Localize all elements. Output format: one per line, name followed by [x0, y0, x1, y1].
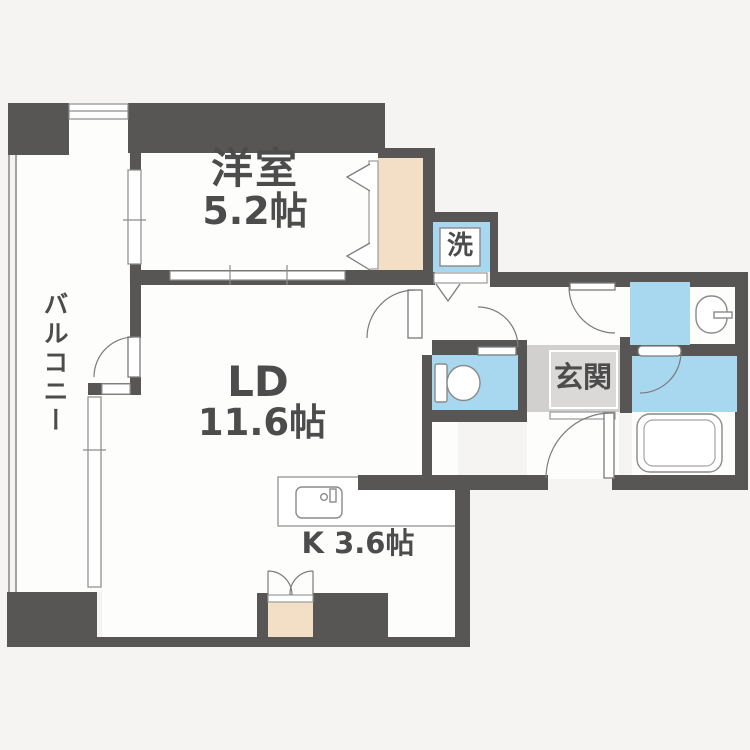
western-room-window [128, 170, 141, 264]
living-dining-name: LD [158, 361, 358, 403]
living-dining-floor [102, 282, 432, 638]
balcony-railing [9, 155, 16, 592]
bathroom-blue [632, 356, 737, 412]
bathtub-icon [637, 414, 722, 472]
floorplan: 洋室 5.2帖 LD 11.6帖 K 3.6帖 玄関 洗 バルコニー [0, 0, 750, 750]
balcony-label: バルコニー [42, 291, 67, 461]
living-dining-size: 11.6帖 [162, 404, 362, 441]
toilet-door-leaf [478, 347, 516, 355]
living-room-window [88, 397, 101, 587]
western-room-size: 5.2帖 [155, 192, 355, 230]
living-room-closet [268, 602, 313, 637]
front-door-leaf [604, 413, 614, 478]
western-room-closet [378, 158, 423, 270]
toilet-icon [435, 364, 480, 402]
hallway-floor [432, 282, 632, 345]
kitchen-sink-icon [296, 487, 342, 518]
floorplan-graphic [0, 0, 750, 750]
washer-label: 洗 [440, 233, 480, 259]
powder-door-leaf [570, 283, 615, 290]
bath-door-leaf [638, 346, 681, 356]
entrance-label: 玄関 [533, 363, 633, 392]
sliding-partition [170, 271, 345, 280]
western-room-name: 洋室 [155, 148, 355, 190]
balcony-door-leaf [128, 337, 140, 377]
kitchen-label: K 3.6帖 [278, 529, 438, 558]
powder-room-blue [630, 282, 690, 345]
hallway-door-leaf [408, 290, 422, 338]
